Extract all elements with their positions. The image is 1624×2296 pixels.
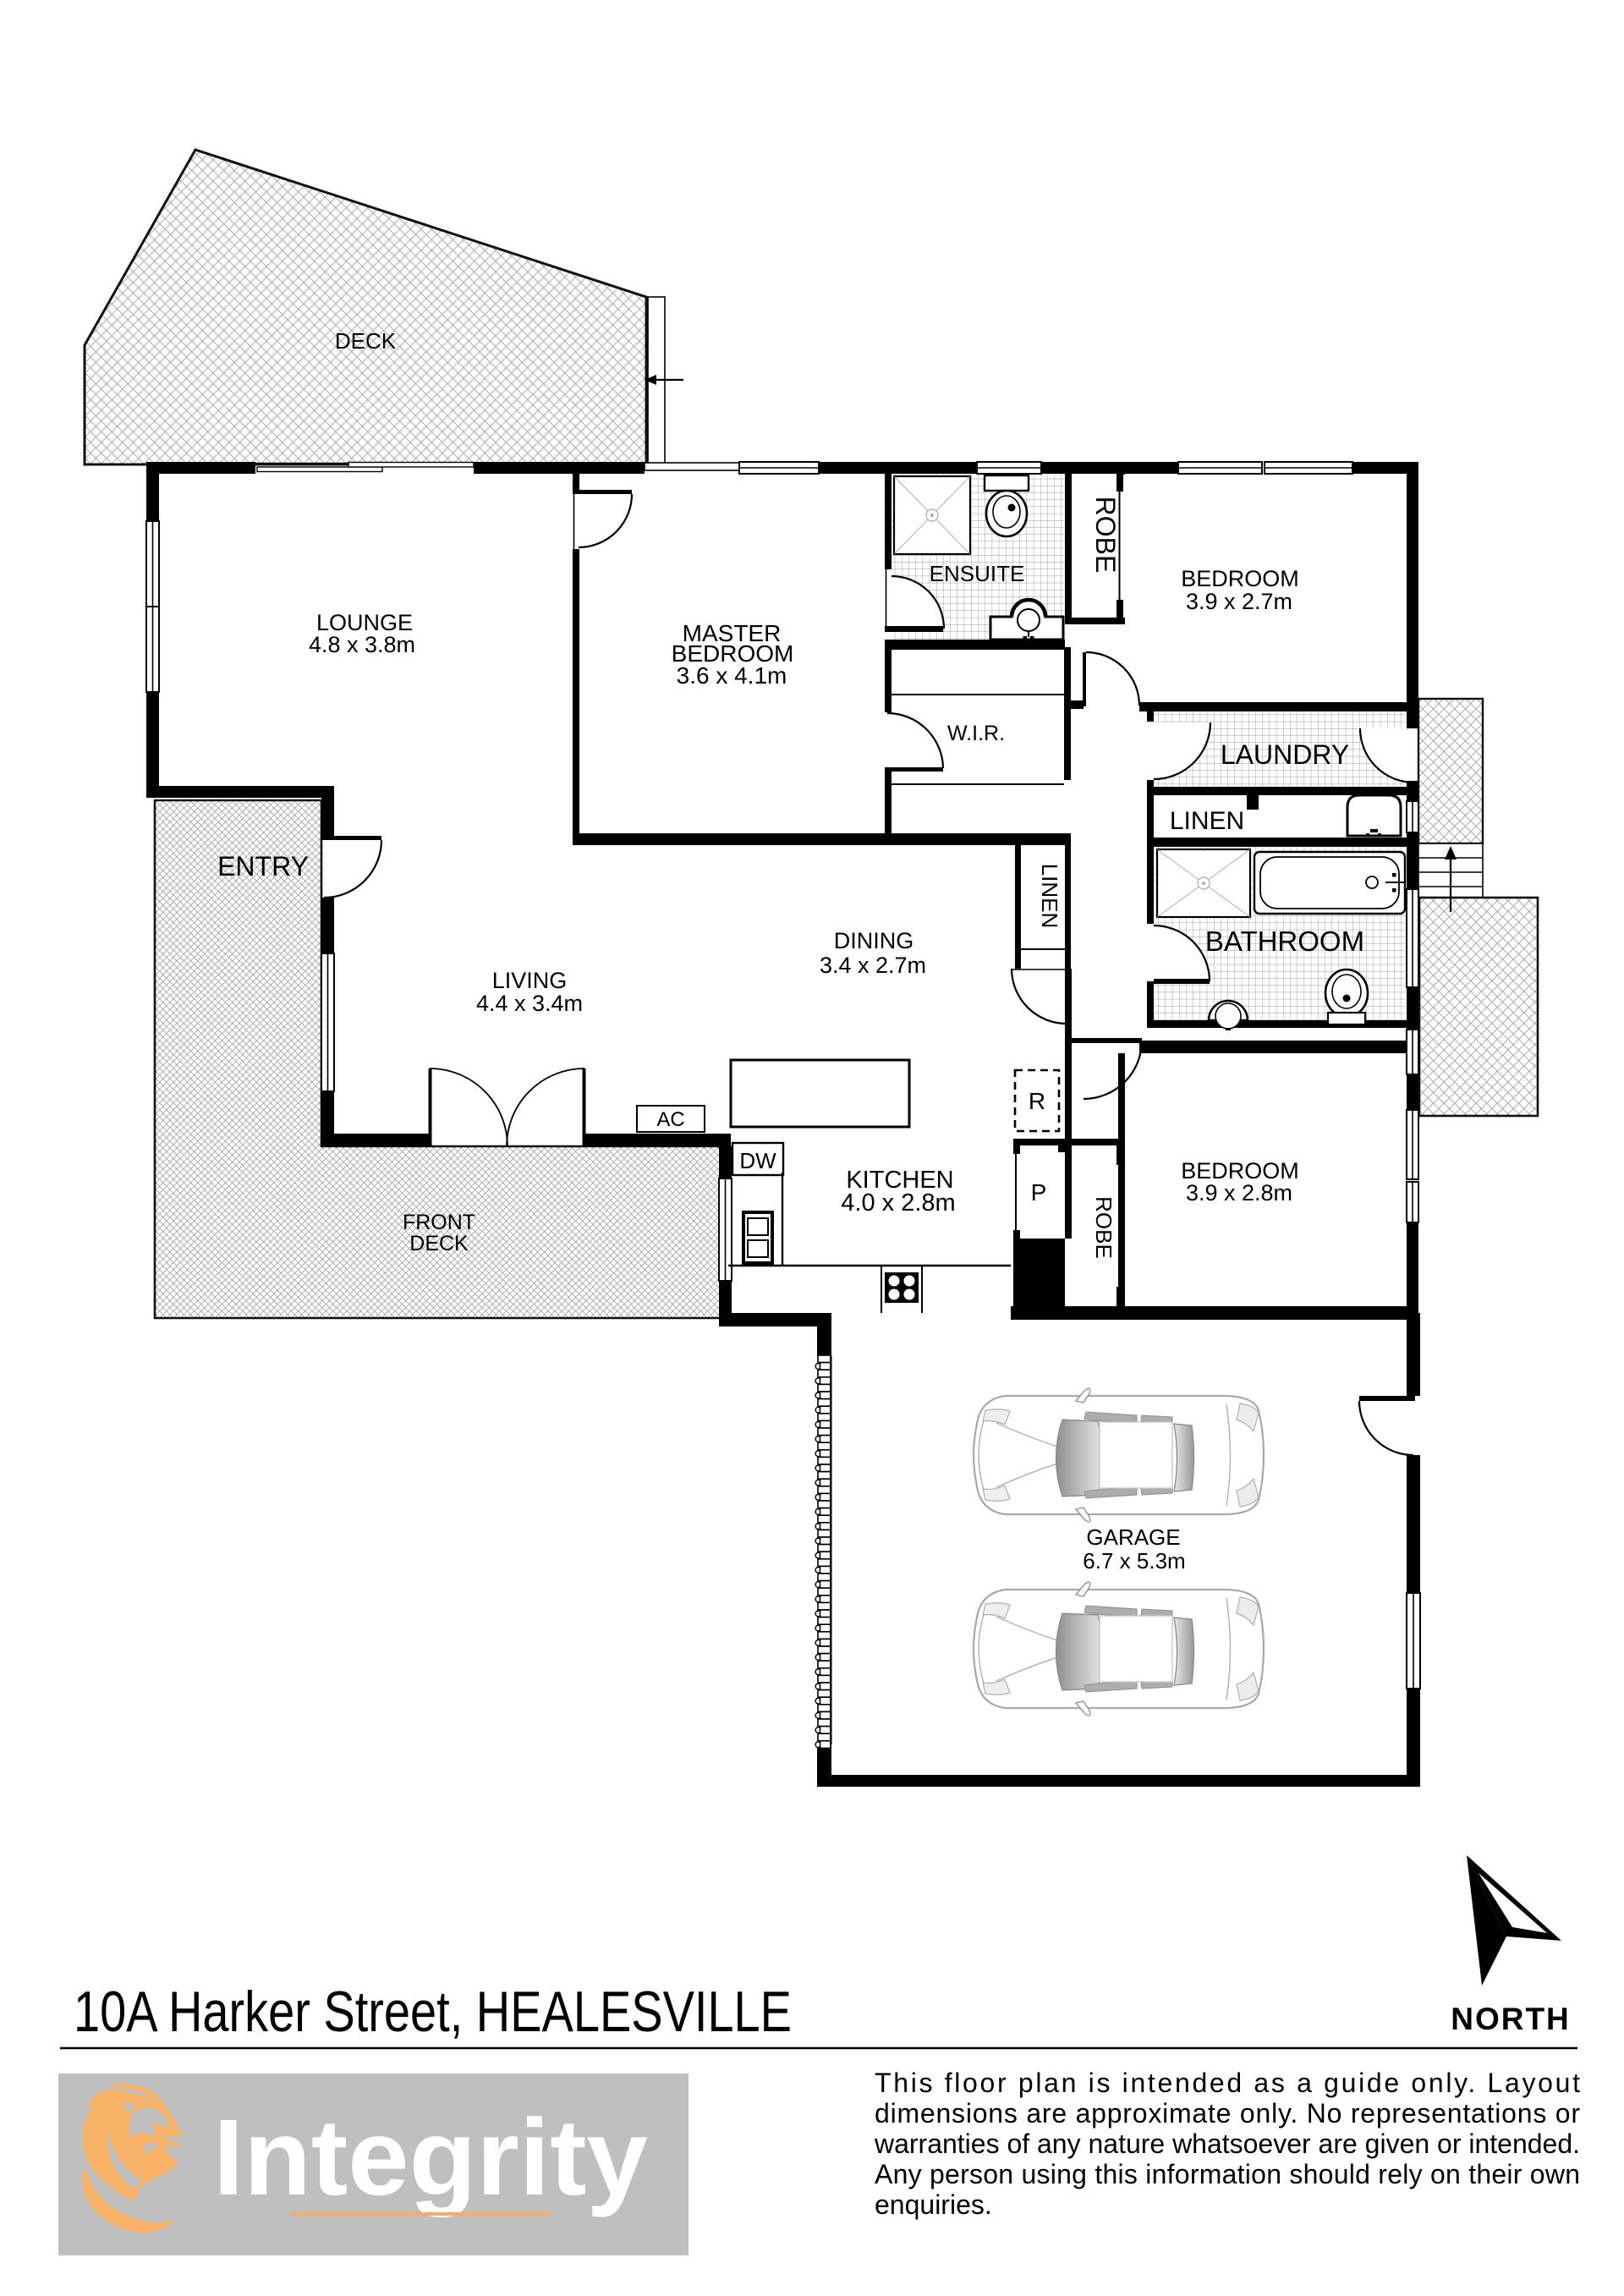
svg-text:3.6 x 4.1m: 3.6 x 4.1m: [677, 662, 787, 689]
svg-text:Any person using this informat: Any person using this information should…: [875, 2159, 1580, 2189]
svg-text:DECK: DECK: [409, 1232, 469, 1255]
svg-text:enquiries.: enquiries.: [875, 2189, 992, 2220]
svg-text:BATHROOM: BATHROOM: [1205, 926, 1364, 957]
svg-text:LINEN: LINEN: [1170, 807, 1244, 835]
svg-text:4.4 x 3.4m: 4.4 x 3.4m: [476, 991, 583, 1016]
svg-text:GARAGE: GARAGE: [1086, 1524, 1180, 1550]
svg-text:3.9 x 2.7m: 3.9 x 2.7m: [1186, 589, 1292, 614]
svg-text:4.0 x 2.8m: 4.0 x 2.8m: [841, 1189, 955, 1217]
svg-text:3.9 x 2.8m: 3.9 x 2.8m: [1186, 1180, 1292, 1206]
svg-text:Integrity: Integrity: [213, 2097, 648, 2218]
svg-text:BEDROOM: BEDROOM: [1181, 566, 1299, 591]
svg-text:W.I.R.: W.I.R.: [947, 722, 1005, 745]
svg-text:ROBE: ROBE: [1090, 497, 1121, 574]
svg-text:LINEN: LINEN: [1037, 864, 1062, 929]
svg-text:NORTH: NORTH: [1451, 2002, 1571, 2036]
svg-text:ENTRY: ENTRY: [217, 851, 309, 882]
svg-text:3.4 x 2.7m: 3.4 x 2.7m: [820, 953, 926, 978]
svg-text:LIVING: LIVING: [492, 968, 568, 993]
svg-text:ROBE: ROBE: [1091, 1196, 1116, 1259]
svg-text:4.8 x 3.8m: 4.8 x 3.8m: [309, 632, 415, 657]
svg-text:6.7 x 5.3m: 6.7 x 5.3m: [1083, 1548, 1185, 1574]
svg-text:warranties of any nature whats: warranties of any nature whatsoever are …: [874, 2128, 1580, 2159]
svg-text:dimensions are approximate onl: dimensions are approximate only. No repr…: [875, 2098, 1580, 2128]
svg-text:P: P: [1031, 1179, 1047, 1206]
svg-text:DINING: DINING: [834, 928, 914, 953]
svg-text:ENSUITE: ENSUITE: [930, 561, 1025, 586]
svg-text:AC: AC: [656, 1108, 684, 1131]
svg-text:DECK: DECK: [335, 328, 397, 354]
svg-text:10A Harker Street, HEALESVILLE: 10A Harker Street, HEALESVILLE: [74, 1980, 792, 2044]
svg-text:R: R: [1029, 1088, 1045, 1114]
svg-text:This floor plan is intended as: This floor plan is intended as a guide o…: [875, 2068, 1580, 2098]
svg-text:LAUNDRY: LAUNDRY: [1221, 739, 1349, 770]
svg-text:FRONT: FRONT: [403, 1211, 475, 1234]
svg-text:DW: DW: [739, 1148, 776, 1173]
